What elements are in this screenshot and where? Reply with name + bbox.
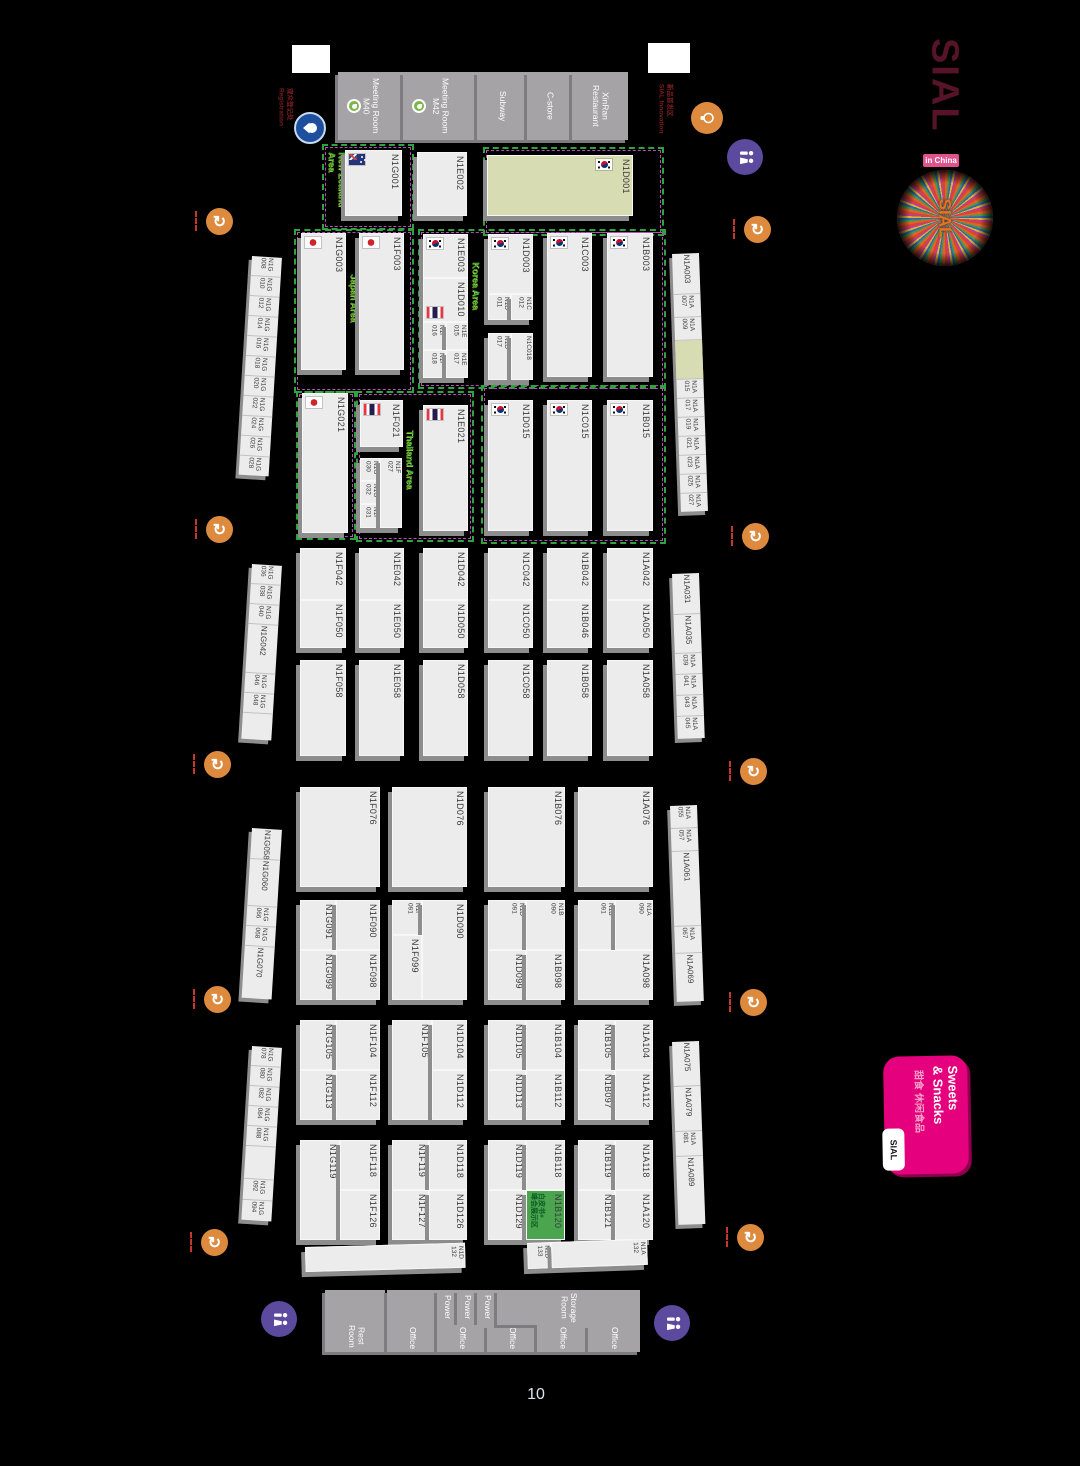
booth-N1F112: N1F112 — [336, 1070, 380, 1120]
booth-N1A055: N1A 055 — [670, 805, 698, 829]
booth-N1A089: N1A089 — [676, 1156, 705, 1225]
booth-N1G082: N1G 082 — [248, 1086, 279, 1108]
booth-label: N1A 081 — [681, 1132, 696, 1155]
booth-N1C012: N1C 012 — [511, 294, 533, 320]
jp-flag-icon — [305, 237, 321, 248]
booth-strip-3: N1G058N1G060N1G 066N1G 068N1G070 — [242, 828, 282, 1000]
exit-marker — [733, 219, 735, 239]
booth-N1D126: N1D126 — [429, 1190, 467, 1240]
booth-label: N1D 132 — [449, 1246, 464, 1259]
booth-label: N1A098 — [641, 954, 651, 988]
booth-N1G022: N1G 022 — [242, 396, 273, 418]
booth-label: N1C050 — [521, 604, 531, 639]
booth-label: N1F099 — [410, 939, 420, 973]
restroom-icon — [261, 1301, 297, 1337]
booth-N1C058: N1C058 — [488, 660, 533, 756]
booth-N1A019: N1A 019 — [678, 417, 706, 437]
booth-strip-6: N1A031N1A035N1A 039N1A 041N1A 043N1A 045 — [672, 573, 705, 739]
booth-N1A098: N1A098 — [578, 950, 653, 1000]
booth-N1G016: N1G 016 — [246, 336, 277, 358]
booth-label: N1F 091 — [406, 903, 421, 915]
booth-label: N1G 032 — [364, 484, 379, 497]
exit-marker — [193, 989, 195, 1009]
booth-N1G010: N1G 010 — [250, 276, 281, 298]
booth-label: N1G 082 — [256, 1087, 272, 1106]
booth-label: N1G 038 — [257, 585, 273, 604]
booth-N1B118: N1B118 — [526, 1140, 565, 1190]
booth-N1F042: N1F042 — [300, 548, 346, 600]
booth-N1A050: N1A050 — [607, 600, 653, 648]
booth-N1D017: N1D 017 — [488, 333, 511, 380]
booth-label: N1D129 — [514, 1194, 524, 1229]
room-label: Power — [442, 1295, 452, 1319]
booth-strip-1: N1G 008N1G 010N1G 012N1G 014N1G 016N1G 0… — [239, 256, 282, 476]
booth-N1A058: N1A058 — [607, 660, 653, 756]
booth-N1B097: N1B097 — [578, 1070, 615, 1120]
booth-N1A027: N1A 027 — [680, 493, 708, 512]
booth-label: N1A 039 — [681, 654, 696, 673]
booth-label: N1B046 — [580, 604, 590, 638]
booth-N1F076: N1F076 — [300, 787, 380, 887]
area-label: Thailand Area — [405, 430, 415, 518]
booth-label: N1G 016 — [254, 337, 270, 356]
booth-N1A132: N1A 132 — [551, 1239, 648, 1268]
booth-N1E003: N1E003 — [423, 234, 468, 278]
booth-label: N1F105 — [420, 1024, 430, 1058]
circulation-icon: ↻ — [744, 216, 771, 243]
booth-label: N1A 023 — [685, 456, 700, 473]
room-label: Office — [407, 1327, 417, 1349]
booth-label: N1A104 — [641, 1024, 651, 1058]
booth-label: N1F098 — [368, 954, 378, 988]
booth-label: N1G 022 — [250, 397, 266, 416]
exit-marker — [731, 526, 733, 546]
booth-N1G026: N1G 026 — [240, 436, 271, 458]
booth-label: N1E021 — [456, 409, 466, 443]
booth-label: N1G 068 — [253, 927, 269, 946]
booth-N1G070: N1G070 — [242, 946, 275, 1000]
booth-label: N1D112 — [455, 1074, 465, 1108]
kr-flag-icon — [611, 404, 627, 415]
booth-N1A045: N1A 045 — [677, 716, 705, 739]
booth-label: N1G070 — [252, 947, 264, 998]
booth-N1G040: N1G 040 — [248, 604, 279, 626]
booth-N1E050: N1E050 — [359, 600, 404, 648]
booth-label: N1E 017 — [452, 353, 467, 366]
booth-N1A035: N1A035 — [673, 614, 701, 654]
booth-strip-7: N1A 055N1A 057N1A061N1A 067N1A069 — [670, 805, 704, 1002]
booth-N1G001: N1G001 — [345, 150, 402, 216]
booth-N1G008: N1G 008 — [251, 256, 282, 278]
booth-N1B046: N1B046 — [547, 600, 592, 648]
booth-label: N1A058 — [641, 664, 651, 698]
room-label: Meeting Room M42 — [430, 78, 449, 133]
booth-N1F018: N1F 018 — [423, 350, 446, 378]
booth-label: N1E 015 — [452, 325, 467, 338]
booth-label: N1A079 — [683, 1087, 693, 1130]
booth-N1G092: N1G 092 — [243, 1179, 274, 1202]
booth-N1C018: N1C018 — [511, 333, 533, 380]
kr-flag-icon — [596, 159, 612, 170]
booth-N1G078: N1G 078 — [251, 1046, 282, 1068]
booth-N1D113: N1D113 — [488, 1070, 526, 1120]
booth-label: N1G003 — [334, 237, 344, 272]
booth-label: N1D058 — [456, 664, 466, 699]
room-power: Power — [477, 1290, 497, 1325]
booth-N1A031: N1A031 — [672, 573, 700, 615]
booth-label: N1G 078 — [259, 1047, 275, 1066]
booth-N1A025: N1A 025 — [680, 474, 708, 494]
booth-N1A120: N1A120 — [615, 1190, 653, 1240]
room-office: Office — [487, 1325, 537, 1352]
booth-label: N1C015 — [580, 404, 590, 439]
booth-N1F099: N1F099 — [392, 935, 422, 1000]
booth-N1G048: N1G 048 — [243, 693, 274, 715]
booth-N1A118: N1A118 — [615, 1140, 653, 1190]
booth-N1F031: N1F 031 — [360, 504, 380, 528]
booth-N1G068: N1G 068 — [245, 926, 276, 948]
booth-N1E058: N1E058 — [359, 660, 404, 756]
booth-label: N1D 017 — [495, 336, 510, 349]
booth-N1C050: N1C050 — [488, 600, 533, 648]
booth-N1D118: N1D118 — [429, 1140, 467, 1190]
booth-label: N1A031 — [681, 574, 691, 613]
room-xinran: XinRan Restaurant — [572, 72, 628, 140]
booth-label: N1A 019 — [684, 418, 699, 435]
booth-N1G060: N1G060 — [247, 859, 280, 908]
booth-N1A021: N1A 021 — [678, 436, 706, 456]
booth-label: N1A 025 — [686, 475, 701, 492]
wall-opening — [648, 43, 690, 73]
booth-N1B091: N1B 091 — [578, 900, 615, 950]
booth-N1B003: N1B003 — [607, 233, 653, 377]
booth-label: N1A 132 — [632, 1242, 647, 1255]
booth-N1G012: N1G 012 — [248, 296, 279, 318]
booth-label: N1G105 — [324, 1024, 334, 1059]
meeting-room-icon — [347, 99, 361, 113]
booth-N1G094: N1G 094 — [241, 1200, 272, 1222]
booth-label: N1C042 — [521, 552, 531, 587]
booth-label: N1F104 — [368, 1024, 378, 1058]
booth-N1E021: N1E021 — [423, 405, 468, 531]
booth-label: N1B097 — [603, 1074, 613, 1108]
kr-flag-icon — [611, 237, 627, 248]
booth-N1E042: N1E042 — [359, 548, 404, 600]
booth-N1B121: N1B121 — [578, 1190, 615, 1240]
booth-label: N1D 011 — [495, 297, 510, 310]
booth-N1F104: N1F104 — [336, 1020, 380, 1070]
meeting-room-icon — [412, 99, 426, 113]
exit-marker — [195, 211, 197, 231]
booth-N1D011: N1D 011 — [488, 294, 511, 320]
booth-N1A090: N1A 090 — [615, 900, 653, 950]
booth-N1G046: N1G 046 — [244, 673, 275, 695]
booth-label: N1G 018 — [252, 357, 268, 376]
jp-flag-icon — [306, 397, 322, 408]
booth-label: N1E042 — [392, 552, 402, 586]
booth-strip-8: N1A075N1A079N1A 081N1A089 — [672, 1041, 705, 1225]
booth-label: N1F119 — [417, 1144, 427, 1177]
booth-N1B090: N1B 090 — [526, 900, 565, 950]
circulation-icon: ↻ — [206, 208, 233, 235]
restroom-icon — [654, 1305, 690, 1341]
booth-label: N1F 027 — [386, 461, 401, 473]
room-label: Meeting Room M40 — [361, 78, 380, 133]
booth-N1A069: N1A069 — [675, 953, 704, 1002]
room-label: Office — [609, 1327, 619, 1349]
booth-label: N1A 021 — [685, 437, 700, 454]
booth-label: N1A 041 — [682, 675, 697, 694]
booth-label: N1G 036 — [259, 565, 275, 584]
booth-N1D129: N1D129 — [488, 1190, 526, 1240]
booth-label: N1A003 — [681, 254, 691, 293]
booth-label: N1G 024 — [249, 417, 265, 436]
booth-label: N1A 067 — [680, 927, 695, 952]
booth-label: N1D113 — [514, 1074, 524, 1108]
booth-label: N1G058 — [261, 830, 272, 859]
booth-label: N1G 080 — [257, 1067, 273, 1086]
booth-label: N1B 090 — [549, 903, 564, 916]
booth-blank — [675, 340, 703, 380]
booth-label: N1G 048 — [251, 694, 267, 713]
booth-N1A061: N1A061 — [672, 851, 702, 927]
booth-label: N1G091 — [324, 904, 334, 939]
sial-logo: SIAL in China SIAL — [905, 36, 995, 271]
booth-label: N1G 046 — [252, 674, 268, 693]
th-flag-icon — [427, 409, 443, 420]
booth-N1B112: N1B112 — [526, 1070, 565, 1120]
booth-N1E002: N1E002 — [417, 152, 467, 216]
booth-label: N1B 091 — [599, 903, 614, 916]
booth-label: N1A 057 — [677, 829, 692, 850]
booth-label: N1A 009 — [680, 318, 695, 339]
booth-N1B104: N1B104 — [526, 1020, 565, 1070]
booth-label: N1E058 — [392, 664, 402, 698]
booth-N1G021: N1G021 — [302, 393, 348, 533]
booth-label: N1D 091 — [510, 903, 525, 916]
booth-N1G036: N1G 036 — [251, 564, 282, 586]
booth-N1A023: N1A 023 — [679, 455, 707, 475]
booth-N1A042: N1A042 — [607, 548, 653, 600]
booth-label: N1A 017 — [683, 399, 698, 416]
booth-N1D132: N1D 132 — [305, 1243, 466, 1272]
booth-N1G028: N1G 028 — [239, 456, 270, 477]
booth-label: N1B042 — [580, 552, 590, 586]
room-power: Power — [437, 1290, 457, 1325]
booth-label: N1D050 — [456, 604, 466, 639]
booth-label: N1B121 — [603, 1194, 613, 1228]
booth-label: N1B015 — [641, 404, 651, 438]
booth-label: N1G099 — [324, 954, 334, 989]
booth-label: N1D010 — [456, 282, 466, 317]
area-label: Korea Area — [471, 262, 481, 334]
booth-N1F003: N1F003 — [359, 233, 404, 370]
booth-strip-4: N1G 078N1G 080N1G 082N1G 084N1G 088N1G 0… — [241, 1046, 282, 1222]
booth-N1E015: N1E 015 — [446, 322, 468, 350]
booth-N1D001: N1D001 — [487, 155, 633, 216]
booth-N1D091: N1D 091 — [488, 900, 526, 950]
booth-label: N1G113 — [324, 1074, 334, 1109]
booth-label: N1F050 — [334, 604, 344, 638]
booth-label: N1D126 — [455, 1194, 465, 1229]
room-office: Office — [537, 1325, 588, 1352]
booth-N1G113: N1G113 — [300, 1070, 336, 1120]
booth-label: N1A 090 — [637, 903, 652, 916]
booth-label: N1G 028 — [246, 457, 262, 476]
booth-label: N1F021 — [391, 404, 401, 438]
booth-label: N1A 027 — [687, 494, 702, 511]
room-subway: Subway — [477, 72, 527, 140]
room-office: Office — [387, 1325, 437, 1352]
booth-N1G119: N1G119 — [300, 1140, 340, 1240]
booth-label: N1A118 — [641, 1144, 651, 1178]
booth-label: N1A 007 — [680, 295, 695, 316]
booth-N1A067: N1A 067 — [674, 926, 702, 954]
booth-label: N1B119 — [603, 1144, 613, 1178]
booth-label: N1F076 — [368, 791, 378, 825]
booth-label: N1A050 — [641, 604, 651, 638]
sial-in-china-badge: in China — [923, 154, 959, 167]
circulation-icon: ↻ — [204, 986, 231, 1013]
booth-label: N1B098 — [553, 954, 563, 988]
booth-N1F118: N1F118 — [340, 1140, 380, 1190]
booth-label: N1B105 — [603, 1024, 613, 1058]
room-label: Office — [558, 1327, 568, 1349]
booth-label: N1D001 — [621, 159, 631, 194]
booth-N1A076: N1A076 — [578, 787, 653, 887]
water-drop-icon — [294, 112, 326, 144]
booth-N1G024: N1G 024 — [241, 416, 272, 438]
booth-label: N1A076 — [641, 791, 651, 825]
booth-N1A104: N1A104 — [615, 1020, 653, 1070]
booth-label: N1C018 — [525, 336, 532, 360]
booth-label: N1C003 — [580, 237, 590, 272]
booth-N1E017: N1E 017 — [446, 350, 468, 378]
booth-N1D105: N1D105 — [488, 1020, 526, 1070]
booth-label: N1B112 — [553, 1074, 563, 1108]
booth-label: N1F118 — [368, 1144, 378, 1177]
booth-N1A003: N1A003 — [672, 253, 700, 295]
innovation-note: 新品首发区 SIAL Innovation — [656, 84, 673, 160]
floorplan-page: New Zealand AreaJapan AreaThailand AreaK… — [0, 0, 1080, 1466]
restroom-icon — [727, 139, 763, 175]
registration-note: 观众登记处 Registration — [276, 88, 293, 154]
room-label: XinRan Restaurant — [590, 85, 609, 127]
booth-N1B098: N1B098 — [526, 950, 565, 1000]
sial-starburst-text: SIAL — [935, 199, 954, 238]
booth-label: N1D015 — [521, 404, 531, 439]
booth-label: N1D118 — [455, 1144, 465, 1178]
booth-label: N1D042 — [456, 552, 466, 587]
room-label: C-store — [545, 92, 555, 120]
booth-N1A015: N1A 015 — [676, 379, 704, 399]
room-label: Office — [457, 1327, 467, 1349]
booth-label: N1E002 — [455, 156, 465, 190]
booth-label: N1G 084 — [255, 1107, 271, 1126]
circulation-icon: ↻ — [201, 1229, 228, 1256]
booth-label: N1F 018 — [430, 353, 445, 365]
booth-N1D003: N1D003 — [488, 234, 533, 294]
booth-label: N1G119 — [328, 1144, 338, 1179]
booth-label: N1A035 — [682, 615, 692, 652]
booth-label: N1D003 — [521, 238, 531, 273]
page-number: 10 — [516, 1386, 556, 1404]
sial-starburst-logo: SIAL — [897, 170, 993, 266]
booth-label: N1A 043 — [683, 696, 698, 715]
booth-label: N1G001 — [390, 154, 400, 189]
booth-note: 白皮书+ 峰会展示区 — [529, 1193, 545, 1228]
booth-label: N1D099 — [514, 954, 524, 989]
booth-label: N1G 088 — [254, 1127, 270, 1146]
circulation-icon: ↻ — [740, 758, 767, 785]
booth-label: N1B058 — [580, 664, 590, 698]
booth-label: N1A075 — [681, 1042, 691, 1085]
booth-N1A079: N1A079 — [674, 1086, 703, 1132]
booth-N1G038: N1G 038 — [250, 584, 281, 606]
booth-N1G058: N1G058 — [250, 828, 282, 861]
booth-N1A081: N1A 081 — [675, 1131, 703, 1157]
booth-label: N1F112 — [368, 1074, 378, 1107]
booth-N1C042: N1C042 — [488, 548, 533, 600]
sweets-snacks-title: Sweets & Snacks — [929, 1065, 961, 1170]
booth-label: N1F090 — [368, 904, 378, 938]
sweets-snacks-chinese: 甜食 休闲食品 — [912, 1070, 925, 1170]
booth-label: N1G042 — [256, 626, 268, 673]
booth-label: N1G 040 — [256, 605, 272, 624]
booth-label: N1G060 — [258, 861, 270, 906]
th-flag-icon — [427, 307, 443, 318]
booth-N1F127: N1F127 — [392, 1190, 429, 1240]
booth-N1A009: N1A 009 — [674, 317, 702, 341]
booth-N1D133: N1D 133 — [527, 1242, 552, 1269]
sweets-snacks-badge: Sweets & Snacks 甜食 休闲食品 SIAL — [883, 1055, 969, 1174]
booth-label: N1G 014 — [255, 317, 271, 336]
booth-label: N1A089 — [685, 1157, 696, 1224]
booth-label: N1A112 — [641, 1074, 651, 1108]
booth-N1F021: N1F021 — [360, 400, 403, 447]
booth-label: N1B076 — [553, 791, 563, 825]
booth-label: N1C058 — [521, 664, 531, 699]
room-label: Office — [507, 1327, 517, 1349]
kr-flag-icon — [492, 404, 508, 415]
exit-marker — [729, 761, 731, 781]
booth-N1D076: N1D076 — [392, 787, 467, 887]
booth-N1B076: N1B076 — [488, 787, 565, 887]
booth-label: N1F126 — [368, 1194, 378, 1228]
booth-label: N1G 012 — [256, 297, 272, 316]
booth-N1D015: N1D015 — [488, 400, 533, 531]
booth-label: N1B120 — [553, 1194, 563, 1228]
th-flag-icon — [364, 404, 380, 415]
jp-flag-icon — [363, 237, 379, 248]
booth-N1G018: N1G 018 — [245, 356, 276, 378]
booth-N1A041: N1A 041 — [676, 674, 704, 696]
booth-label: N1F003 — [392, 237, 402, 271]
booth-strip-5: N1A003N1A 007N1A 009N1A 015N1A 017N1A 01… — [672, 253, 708, 512]
room-blank — [325, 1290, 385, 1320]
kr-flag-icon — [551, 404, 567, 415]
booth-label: N1G 066 — [254, 907, 270, 926]
booth-label: N1A 055 — [676, 806, 691, 827]
booth-N1G030: N1G 030 — [360, 458, 380, 481]
booth-label: N1F058 — [334, 664, 344, 698]
circulation-icon: ↻ — [204, 751, 231, 778]
booth-label: N1A042 — [641, 552, 651, 586]
booth-N1G032: N1G 032 — [360, 481, 380, 504]
room-label: Storage Room — [559, 1293, 578, 1323]
booth-label: N1G 008 — [259, 257, 275, 276]
room-c-store: C-store — [527, 72, 572, 140]
